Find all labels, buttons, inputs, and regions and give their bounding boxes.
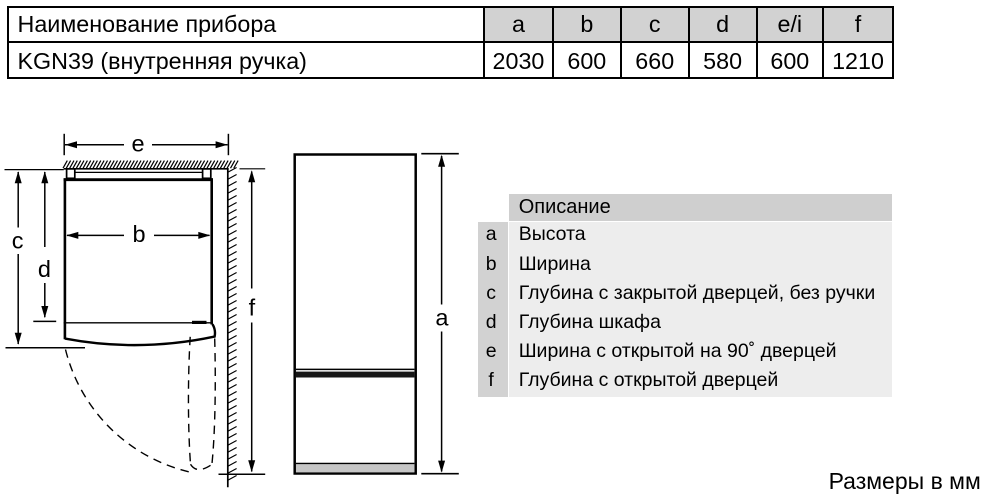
svg-text:d: d (38, 256, 51, 282)
svg-text:e: e (131, 131, 144, 157)
svg-text:a: a (435, 304, 449, 330)
svg-text:f: f (249, 295, 256, 321)
svg-text:c: c (12, 228, 24, 254)
svg-text:b: b (132, 221, 145, 247)
